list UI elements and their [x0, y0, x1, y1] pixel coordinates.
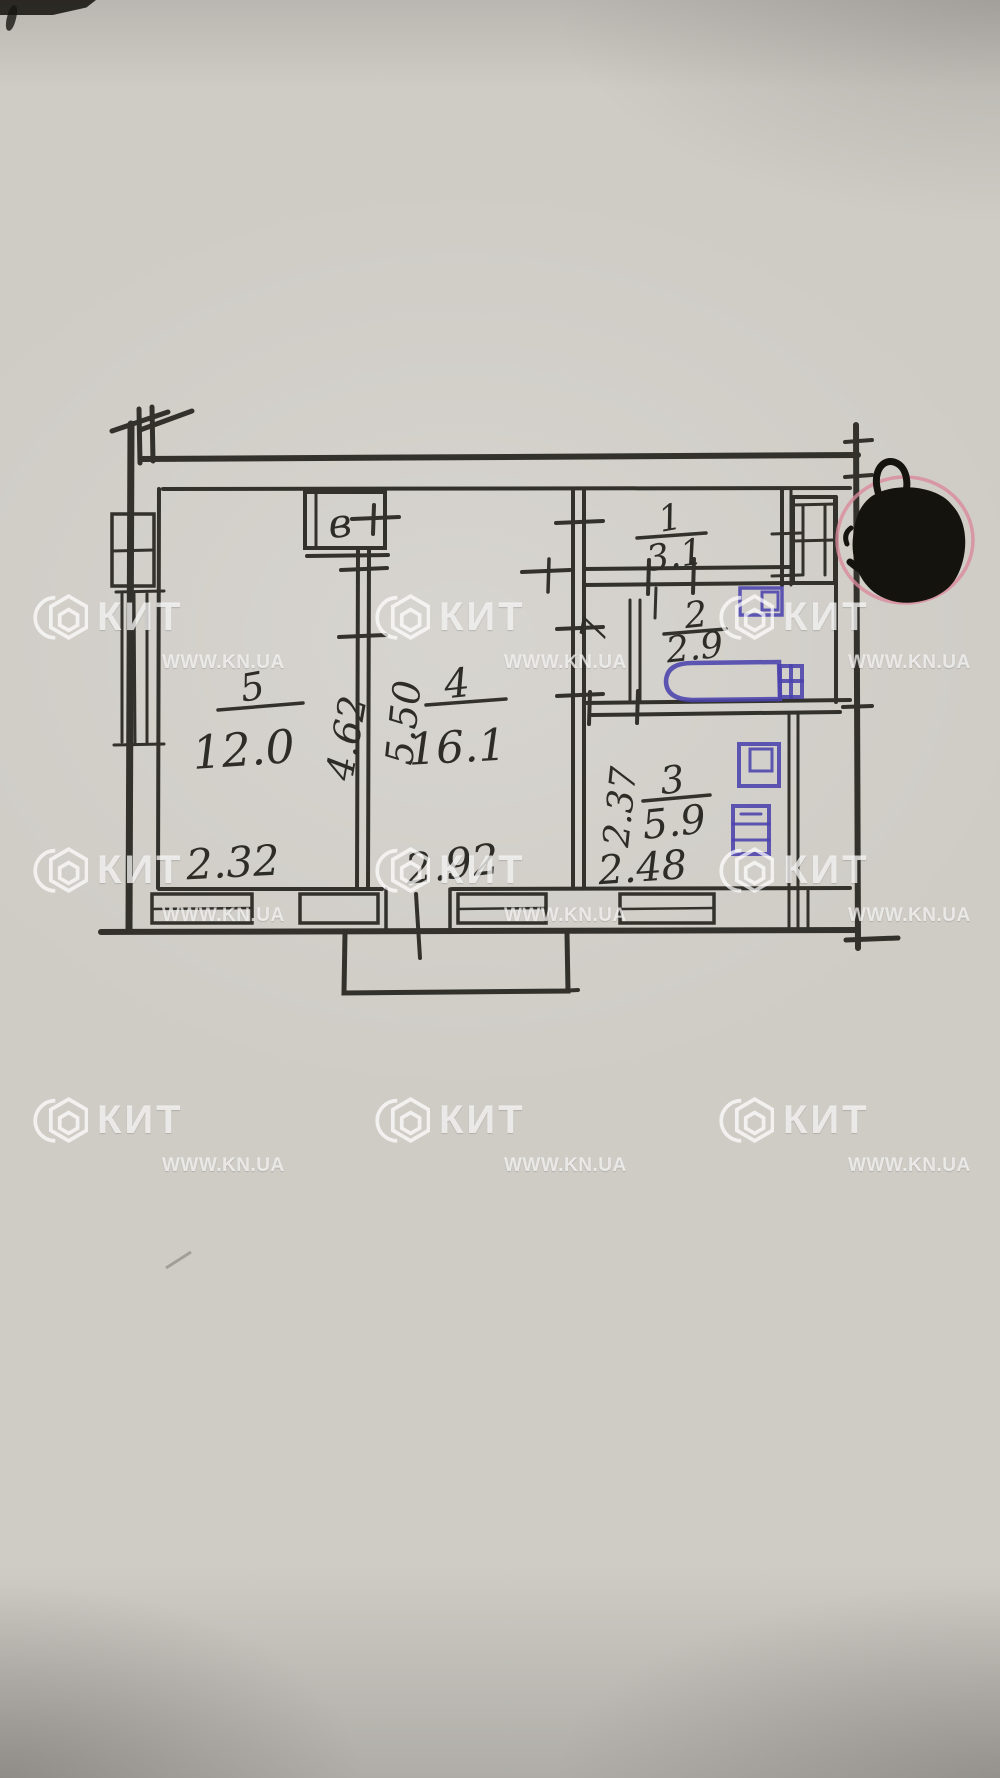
kit-logo-icon [716, 1095, 774, 1145]
watermark-url: WWW.KN.UA [848, 652, 971, 674]
kit-logo-icon [716, 845, 774, 895]
watermark-url: WWW.KN.UA [504, 905, 627, 927]
room-area: 3.1 [644, 532, 706, 581]
kit-logo-icon [30, 592, 88, 642]
watermark-url: WWW.KN.UA [848, 1155, 971, 1177]
watermark-kit: КИТ [372, 845, 526, 895]
scribble-annotation [846, 461, 966, 602]
wall-break-symbol [112, 407, 192, 463]
kit-logo-icon [372, 845, 430, 895]
wall-room4-hall [522, 489, 603, 888]
watermark-url: WWW.KN.UA [504, 1155, 627, 1177]
watermark-url: WWW.KN.UA [848, 905, 971, 927]
watermark-kit: КИТ [716, 845, 870, 895]
watermark-kit: КИТ [372, 1095, 526, 1145]
balcony [344, 933, 568, 993]
watermark-brand: КИТ [439, 850, 526, 890]
watermark-kit: КИТ [716, 592, 870, 642]
watermark-brand: КИТ [97, 1100, 184, 1140]
watermark-brand: КИТ [783, 1100, 870, 1140]
dim-bottom: 2.32 [184, 835, 281, 889]
room3-label: 3 5.9 2.48 2.37 [596, 757, 710, 894]
kit-logo-icon [372, 592, 430, 642]
dim-side: 2.37 [596, 765, 645, 850]
kit-logo-icon [30, 845, 88, 895]
watermark-brand: КИТ [97, 850, 184, 890]
watermark-brand: КИТ [783, 850, 870, 890]
watermark-kit: КИТ [30, 1095, 184, 1145]
watermark-kit: КИТ [716, 1095, 870, 1145]
watermark-url: WWW.KN.UA [504, 652, 627, 674]
wall-closet [630, 600, 640, 700]
kit-logo-icon [716, 592, 774, 642]
watermark-brand: КИТ [783, 597, 870, 637]
room5-label: 5 12.0 2.32 4.62 [184, 663, 376, 889]
watermark-brand: КИТ [439, 597, 526, 637]
watermark-brand: КИТ [97, 597, 184, 637]
kit-logo-icon [30, 1095, 88, 1145]
wall-kitchen-right [789, 714, 798, 930]
watermark-brand: КИТ [439, 1100, 526, 1140]
vent-shaft-box: в [305, 492, 399, 556]
pencil-mark [166, 1252, 191, 1268]
balcony-door [386, 889, 450, 958]
paper-photo: в [0, 0, 1000, 1778]
watermark-url: WWW.KN.UA [162, 1155, 285, 1177]
watermark-kit: КИТ [372, 592, 526, 642]
balcony-corner-tick [560, 990, 578, 991]
dim-side: 5.50 [377, 678, 430, 767]
watermark-kit: КИТ [30, 592, 184, 642]
kitchen-sink-icon [739, 744, 779, 786]
room-number: 7 [573, 615, 618, 646]
wall-bath-kitchen [584, 691, 850, 724]
vent-label: в [326, 500, 353, 548]
dim-bottom: 2.48 [596, 842, 689, 894]
room-area: 5.9 [640, 797, 708, 849]
watermark-kit: КИТ [30, 845, 184, 895]
watermark-url: WWW.KN.UA [162, 652, 285, 674]
kit-logo-icon [372, 1095, 430, 1145]
room1-label: 1 3.1 [637, 496, 706, 580]
watermark-url: WWW.KN.UA [162, 905, 285, 927]
room-area: 12.0 [191, 719, 297, 780]
closet7-label: 7 [573, 615, 618, 646]
